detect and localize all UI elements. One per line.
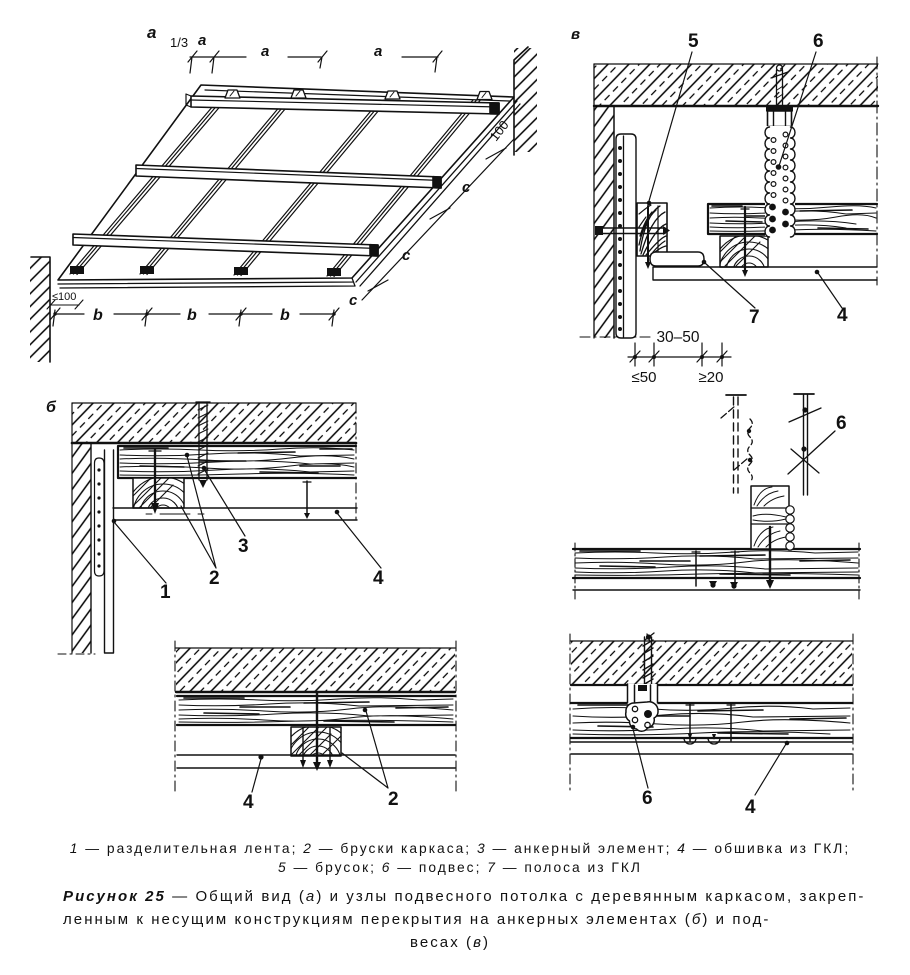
svg-text:a: a bbox=[147, 23, 156, 42]
svg-text:1/3: 1/3 bbox=[170, 35, 188, 50]
svg-text:ленным к несущим конструкциям: ленным к несущим конструкциям перекрытия… bbox=[63, 911, 770, 928]
svg-text:5 — брусок; 6 — подвес; 7 — по: 5 — брусок; 6 — подвес; 7 — полоса из ГК… bbox=[278, 860, 642, 875]
svg-text:6: 6 bbox=[642, 788, 653, 809]
svg-text:4: 4 bbox=[243, 792, 254, 813]
svg-text:a: a bbox=[261, 43, 269, 60]
svg-text:Рисунок 25 — Общий вид (а) и у: Рисунок 25 — Общий вид (а) и узлы подвес… bbox=[63, 888, 865, 905]
svg-text:c: c bbox=[349, 292, 358, 309]
svg-text:6: 6 bbox=[813, 31, 824, 52]
svg-text:a: a bbox=[198, 32, 206, 49]
svg-text:2: 2 bbox=[209, 568, 220, 589]
svg-text:в: в bbox=[571, 26, 580, 43]
svg-text:4: 4 bbox=[373, 568, 384, 589]
svg-text:1: 1 bbox=[160, 582, 171, 603]
svg-text:c: c bbox=[462, 179, 471, 196]
svg-text:100: 100 bbox=[487, 118, 512, 144]
svg-text:7: 7 bbox=[749, 307, 760, 328]
svg-text:6: 6 bbox=[836, 413, 847, 434]
svg-text:б: б bbox=[46, 399, 57, 416]
svg-text:b: b bbox=[280, 307, 290, 324]
svg-text:≤100: ≤100 bbox=[52, 291, 76, 303]
svg-text:30–50: 30–50 bbox=[656, 329, 699, 346]
svg-text:1 — разделительная лента; 2 —: 1 — разделительная лента; 2 — бруски кар… bbox=[70, 841, 850, 856]
svg-text:c: c bbox=[402, 247, 411, 264]
svg-text:5: 5 bbox=[688, 31, 699, 52]
svg-text:≥20: ≥20 bbox=[699, 369, 724, 386]
svg-text:2: 2 bbox=[388, 789, 399, 810]
svg-text:b: b bbox=[93, 307, 103, 324]
svg-text:a: a bbox=[374, 43, 382, 60]
svg-text:≤50: ≤50 bbox=[632, 369, 657, 386]
svg-text:b: b bbox=[187, 307, 197, 324]
svg-text:3: 3 bbox=[238, 536, 249, 557]
svg-text:весах (в): весах (в) bbox=[410, 934, 490, 951]
svg-text:4: 4 bbox=[745, 797, 756, 818]
